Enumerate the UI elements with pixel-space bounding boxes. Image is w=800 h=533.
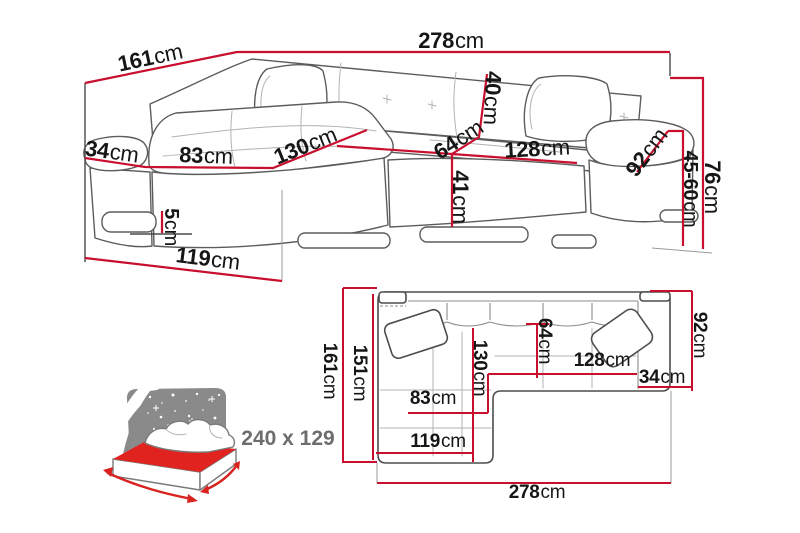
dim-unit: cm	[441, 431, 466, 452]
dim-value: 34	[639, 367, 660, 388]
sofa-foot	[298, 233, 390, 248]
plan-left-corner-post	[379, 292, 406, 303]
dim-unit: cm	[108, 139, 140, 168]
dim-value: 278	[418, 28, 454, 53]
dim-value: 41	[448, 170, 473, 194]
dim-unit: cm	[349, 377, 370, 402]
dim-value: 40	[480, 71, 506, 96]
dim-value: 128	[504, 136, 541, 163]
diagram-canvas: 161cm 278cm 34cm 83cm 130cm 40cm 64cm 12…	[0, 0, 800, 533]
dim-value: 161	[115, 45, 155, 77]
dim-value: 151	[349, 345, 370, 377]
bed-size-label: 240 x 129	[241, 427, 334, 450]
dim-total-width-label: 278cm	[418, 28, 484, 53]
plan-view: 161cm 151cm 130cm 64cm 83cm 119cm 128cm …	[319, 288, 710, 503]
plan-dim-chaise-inner-length-label: 130cm	[469, 340, 490, 397]
dim-unit: cm	[469, 372, 490, 397]
dim-value: 45-60	[679, 151, 701, 201]
sofa-dimensions-diagram: 161cm 278cm 34cm 83cm 130cm 40cm 64cm 12…	[0, 0, 800, 533]
dim-unit: cm	[319, 375, 340, 400]
chaise-base	[90, 168, 152, 247]
dim-unit: cm	[606, 350, 631, 371]
dim-value: 76	[700, 160, 725, 184]
perspective-view: 161cm 278cm 34cm 83cm 130cm 40cm 64cm 12…	[84, 28, 725, 281]
plan-dim-seat-depth-label: 64cm	[534, 318, 555, 364]
dim-value: 34	[84, 135, 112, 163]
dim-unit: cm	[210, 247, 242, 275]
dim-seat-height-range-label: 45-60cm	[679, 151, 701, 228]
dim-value: 130	[469, 340, 490, 371]
dim-base-height-label: 41cm	[448, 170, 473, 224]
dim-value: 92	[689, 312, 710, 333]
dim-unit: cm	[455, 28, 484, 53]
plan-dim-chaise-outer-width-label: 119cm	[410, 431, 466, 452]
dim-value: 64	[534, 318, 555, 339]
dim-unit: cm	[534, 339, 555, 364]
dim-unit: cm	[679, 201, 701, 227]
dim-unit: cm	[431, 388, 456, 409]
plan-dim-total-width-label: 278cm	[509, 482, 566, 503]
dim-value: 161	[319, 343, 340, 375]
plan-dim-armrest-width-label: 34cm	[639, 367, 685, 388]
dim-unit: cm	[204, 143, 234, 169]
dim-unit: cm	[660, 367, 685, 388]
dim-unit: cm	[540, 134, 570, 160]
dim-unit: cm	[700, 185, 725, 214]
dim-value: 83	[410, 388, 431, 409]
dim-value: 278	[509, 482, 540, 503]
sofa-foot	[552, 235, 596, 248]
plan-right-corner-post	[640, 292, 670, 301]
dim-chaise-front-width-label: 83cm	[179, 142, 233, 169]
plan-dim-chaise-length-label: 151cm	[349, 345, 370, 402]
main-base	[388, 158, 586, 227]
dim-seat-width-label: 128cm	[504, 134, 571, 162]
dim-unit: cm	[541, 482, 566, 503]
dim-unit: cm	[689, 333, 710, 358]
dim-value: 119	[410, 431, 440, 452]
sofa-foot	[102, 212, 156, 232]
dim-value: 5	[160, 208, 182, 219]
dim-unit: cm	[479, 95, 505, 125]
plan-dim-chaise-width-label: 83cm	[410, 388, 456, 409]
dim-leg-height-label: 5cm	[160, 208, 182, 246]
dim-backrest-height-label: 40cm	[479, 71, 507, 126]
plan-dim-total-depth-left-label: 161cm	[319, 343, 340, 400]
dim-total-height-label: 76cm	[700, 160, 725, 214]
dim-value: 119	[174, 242, 211, 271]
plan-dim-seat-width-label: 128cm	[574, 350, 631, 371]
plan-dim-right-side-depth-label: 92cm	[689, 312, 710, 358]
dim-value: 83	[179, 142, 204, 168]
bed-icon: 240 x 129	[103, 388, 335, 503]
dim-value: 128	[574, 350, 605, 371]
sofa-foot	[420, 227, 528, 242]
dim-unit: cm	[448, 195, 473, 224]
